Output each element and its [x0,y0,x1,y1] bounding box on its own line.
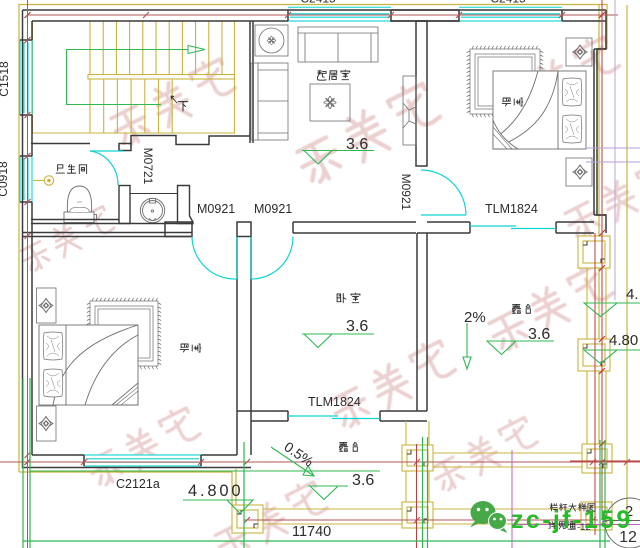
svg-text:4.: 4. [626,286,639,303]
svg-text:TLM1824: TLM1824 [485,202,538,216]
svg-text:M0921: M0921 [197,202,235,216]
svg-text:4.800: 4.800 [188,482,243,500]
svg-text:3.6: 3.6 [528,326,550,343]
svg-text:3.6: 3.6 [346,318,368,335]
svg-text:TLM1824: TLM1824 [308,395,361,409]
svg-text:C0918: C0918 [0,161,10,197]
svg-text:C2121a: C2121a [116,477,160,491]
svg-text:M0721: M0721 [141,148,155,185]
svg-text:3.6: 3.6 [346,136,368,153]
svg-text:C2415: C2415 [300,0,336,6]
svg-text:M0921: M0921 [399,174,413,211]
svg-text:11740: 11740 [292,524,331,540]
svg-text:M0921: M0921 [254,202,292,216]
svg-text:C2415: C2415 [490,0,526,6]
svg-text:4.80: 4.80 [609,332,638,349]
svg-text:2%: 2% [464,309,486,326]
svg-text:3.6: 3.6 [352,472,374,489]
svg-text:zc-jf-159: zc-jf-159 [511,506,633,534]
svg-text:C1518: C1518 [0,61,11,97]
